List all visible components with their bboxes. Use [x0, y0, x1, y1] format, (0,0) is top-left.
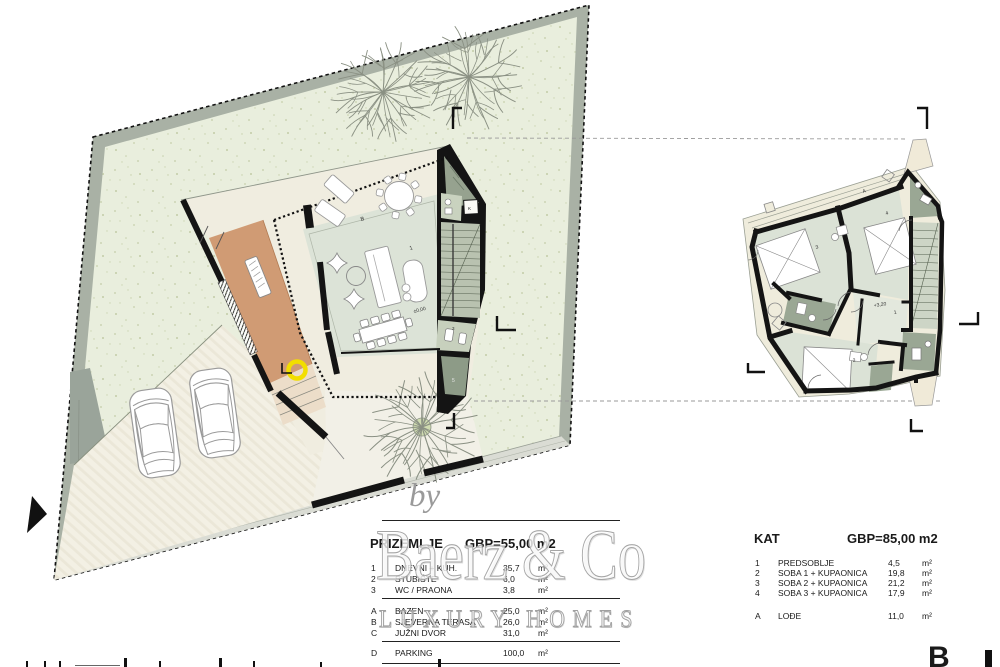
svg-text:5: 5 — [452, 378, 455, 384]
svg-text:K: K — [468, 206, 471, 211]
